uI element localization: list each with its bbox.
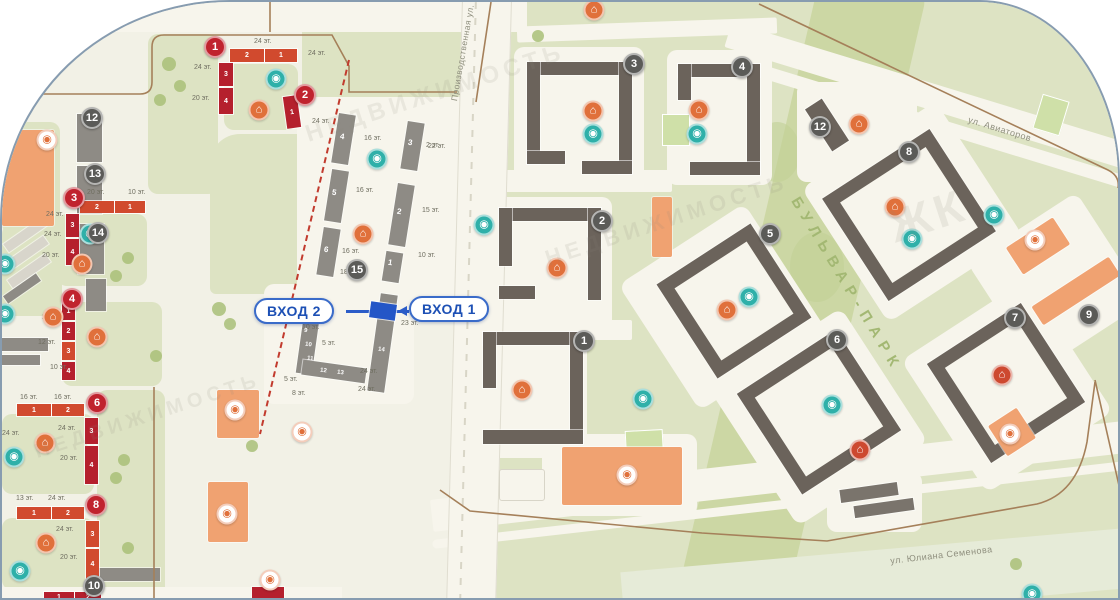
building-number-badge[interactable]: 4 xyxy=(731,56,753,78)
building-section[interactable]: 1 xyxy=(115,201,145,213)
building-section[interactable]: 4 xyxy=(219,88,233,114)
floor-count-label: 8 эт. xyxy=(292,390,306,397)
building-section[interactable]: 3 xyxy=(219,63,233,86)
building-section[interactable]: 3 xyxy=(66,214,79,237)
courtyard-building-4[interactable] xyxy=(678,64,691,100)
red-amenity-icon[interactable]: ⌂ xyxy=(992,365,1013,386)
orange-amenity-icon[interactable]: ⌂ xyxy=(689,100,710,121)
building-slab-number: 11 xyxy=(307,356,314,363)
teal-amenity-icon[interactable]: ◉ xyxy=(687,124,708,145)
tree xyxy=(150,350,162,362)
courtyard-building-3[interactable] xyxy=(619,62,632,174)
floor-count-label: 24 эт. xyxy=(360,368,378,375)
orange-amenity-icon[interactable]: ⌂ xyxy=(72,254,93,275)
courtyard-building-1[interactable] xyxy=(483,332,496,388)
building-number-badge[interactable]: 2 xyxy=(294,84,316,106)
courtyard-building-2[interactable] xyxy=(499,208,601,221)
building-number-badge[interactable]: 15 xyxy=(346,259,368,281)
floor-count-label: 24 эт. xyxy=(46,211,64,218)
teal-amenity-icon[interactable]: ◉ xyxy=(822,395,843,416)
road xyxy=(2,2,527,32)
building-section[interactable]: 2 xyxy=(80,201,114,213)
building-section[interactable]: 1 xyxy=(44,592,74,600)
teal-amenity-icon[interactable]: ◉ xyxy=(266,69,287,90)
teal-amenity-icon[interactable]: ◉ xyxy=(739,287,760,308)
tree xyxy=(110,270,122,282)
building-number-badge[interactable]: 12 xyxy=(809,116,831,138)
floor-count-label: 10 эт. xyxy=(128,189,146,196)
teal-amenity-icon[interactable]: ◉ xyxy=(984,205,1005,226)
building-number-badge[interactable]: 13 xyxy=(84,163,106,185)
floor-count-label: 2 эт. xyxy=(426,142,440,149)
floor-count-label: 10 эт. xyxy=(418,252,436,259)
building-number-badge[interactable]: 10 xyxy=(83,575,105,597)
building-number-badge[interactable]: 5 xyxy=(759,223,781,245)
tree xyxy=(110,472,122,484)
floor-count-label: 23 эт. xyxy=(401,320,419,327)
teal-amenity-icon[interactable]: ◉ xyxy=(367,149,388,170)
tree xyxy=(246,440,258,452)
tree xyxy=(1010,558,1022,570)
floor-count-label: 24 эт. xyxy=(254,38,272,45)
building-section[interactable]: 2 xyxy=(230,49,264,62)
building-number-badge[interactable]: 4 xyxy=(61,288,83,310)
tree xyxy=(154,94,166,106)
building-number-badge[interactable]: 8 xyxy=(898,141,920,163)
courtyard-building-3[interactable] xyxy=(527,151,565,164)
building-slab xyxy=(98,568,160,581)
orange-amenity-icon[interactable]: ⌂ xyxy=(849,114,870,135)
teal-amenity-icon[interactable]: ◉ xyxy=(10,561,31,582)
courtyard-building-4[interactable] xyxy=(747,64,760,174)
orange-amenity-icon[interactable]: ⌂ xyxy=(353,224,374,245)
floor-count-label: 24 эт. xyxy=(308,50,326,57)
tree xyxy=(122,542,134,554)
building-section[interactable]: 3 xyxy=(86,521,99,547)
orange-amenity-icon[interactable]: ⌂ xyxy=(583,101,604,122)
floor-count-label: 24 эт. xyxy=(44,231,62,238)
masterplan-map: 21341213412341234123412 24 эт.24 эт.24 э… xyxy=(0,0,1120,600)
floor-count-label: 24 эт. xyxy=(2,430,20,437)
floor-count-label: 16 эт. xyxy=(364,135,382,142)
school-amenity-icon[interactable]: ◉ xyxy=(260,570,281,591)
building-section[interactable]: 1 xyxy=(265,49,297,62)
floor-count-label: 16 эт. xyxy=(54,394,72,401)
teal-amenity-icon[interactable]: ◉ xyxy=(4,447,25,468)
tree xyxy=(212,302,226,316)
building-number-badge[interactable]: 9 xyxy=(1078,304,1100,326)
building-section[interactable]: 4 xyxy=(85,446,98,484)
building-section[interactable]: 2 xyxy=(52,507,84,519)
building-slab xyxy=(86,279,106,311)
floor-count-label: 24 эт. xyxy=(48,495,66,502)
floor-count-label: 24 эт. xyxy=(56,526,74,533)
school-amenity-icon[interactable]: ◉ xyxy=(217,504,238,525)
school-amenity-icon[interactable]: ◉ xyxy=(225,400,246,421)
floor-count-label: 20 эт. xyxy=(87,189,105,196)
building-number-badge[interactable]: 14 xyxy=(87,222,109,244)
entrance-arrow-icon xyxy=(398,306,407,316)
tree xyxy=(532,30,544,42)
building-slab-number: 12 xyxy=(320,368,327,375)
building-number-badge[interactable]: 6 xyxy=(86,392,108,414)
orange-amenity-icon[interactable]: ⌂ xyxy=(717,300,738,321)
building-light xyxy=(499,469,545,501)
tree xyxy=(122,252,134,264)
teal-amenity-icon[interactable]: ◉ xyxy=(583,124,604,145)
building-section[interactable]: 2 xyxy=(62,322,75,340)
floor-count-label: 13 эт. xyxy=(16,495,34,502)
floor-count-label: 24 эт. xyxy=(194,64,212,71)
school-amenity-icon[interactable]: ◉ xyxy=(1000,424,1021,445)
floor-count-label: 20 эт. xyxy=(42,252,60,259)
park-area xyxy=(148,34,218,194)
building-section[interactable]: 2 xyxy=(52,404,84,416)
selected-building-section[interactable] xyxy=(369,301,397,320)
school-amenity-icon[interactable]: ◉ xyxy=(292,422,313,443)
orange-amenity-icon[interactable]: ⌂ xyxy=(43,307,64,328)
orange-amenity-icon[interactable]: ⌂ xyxy=(512,380,533,401)
building-slab-number: 10 xyxy=(305,342,312,349)
courtyard-building-3[interactable] xyxy=(582,161,632,174)
teal-amenity-icon[interactable]: ◉ xyxy=(474,215,495,236)
building-number-badge[interactable]: 1 xyxy=(204,36,226,58)
building-number-badge[interactable]: 12 xyxy=(81,107,103,129)
building-section[interactable]: 1 xyxy=(17,404,51,416)
orange-amenity-icon[interactable]: ⌂ xyxy=(36,533,57,554)
school-amenity-icon[interactable]: ◉ xyxy=(1025,230,1046,251)
floor-count-label: 20 эт. xyxy=(60,554,78,561)
teal-amenity-icon[interactable]: ◉ xyxy=(0,304,16,325)
floor-count-label: 12 эт. xyxy=(38,339,56,346)
courtyard-building-4[interactable] xyxy=(690,162,760,175)
orange-amenity-icon[interactable]: ⌂ xyxy=(87,327,108,348)
floor-count-label: 15 эт. xyxy=(422,207,440,214)
teal-amenity-icon[interactable]: ◉ xyxy=(633,389,654,410)
orange-amenity-icon[interactable]: ⌂ xyxy=(584,0,605,21)
building-slab xyxy=(2,355,40,365)
building-number-badge[interactable]: 8 xyxy=(85,494,107,516)
courtyard-building-1[interactable] xyxy=(483,430,583,444)
floor-count-label: 5 эт. xyxy=(322,340,336,347)
floor-count-label: 24 эт. xyxy=(358,386,376,393)
courtyard-building-1[interactable] xyxy=(483,332,583,345)
building-number-badge[interactable]: 3 xyxy=(623,53,645,75)
building-slab-number: 14 xyxy=(378,347,385,354)
school-amenity-icon[interactable]: ◉ xyxy=(617,465,638,486)
floor-count-label: 16 эт. xyxy=(356,187,374,194)
floor-count-label: 10 эт. xyxy=(50,364,68,371)
courtyard-green xyxy=(62,302,162,386)
red-amenity-icon[interactable]: ⌂ xyxy=(850,440,871,461)
tree xyxy=(174,80,186,92)
building-slab-number: 13 xyxy=(337,370,344,377)
courtyard-building-2[interactable] xyxy=(499,286,535,299)
school-amenity-icon[interactable]: ◉ xyxy=(37,130,58,151)
entrance-2-pill[interactable]: ВХОД 2 xyxy=(254,298,334,324)
floor-count-label: 16 эт. xyxy=(20,394,38,401)
building-number-badge[interactable]: 7 xyxy=(1004,307,1026,329)
floor-count-label: 20 эт. xyxy=(192,95,210,102)
building-section[interactable]: 3 xyxy=(62,342,75,360)
floor-count-label: 5 эт. xyxy=(284,376,298,383)
teal-amenity-icon[interactable]: ◉ xyxy=(1022,584,1043,600)
tree xyxy=(118,454,130,466)
floor-count-label: 16 эт. xyxy=(342,248,360,255)
building-section[interactable]: 1 xyxy=(17,507,51,519)
building-number-badge[interactable]: 6 xyxy=(826,329,848,351)
tree xyxy=(224,318,236,330)
courtyard-building-2[interactable] xyxy=(499,208,512,266)
orange-amenity-icon[interactable]: ⌂ xyxy=(249,100,270,121)
tree xyxy=(162,57,176,71)
building-number-badge[interactable]: 3 xyxy=(63,187,85,209)
map-canvas: 21341213412341234123412 24 эт.24 эт.24 э… xyxy=(0,0,1120,600)
entrance-1-pill[interactable]: ВХОД 1 xyxy=(409,296,489,322)
building-number-badge[interactable]: 1 xyxy=(573,330,595,352)
sports-field xyxy=(662,114,690,146)
